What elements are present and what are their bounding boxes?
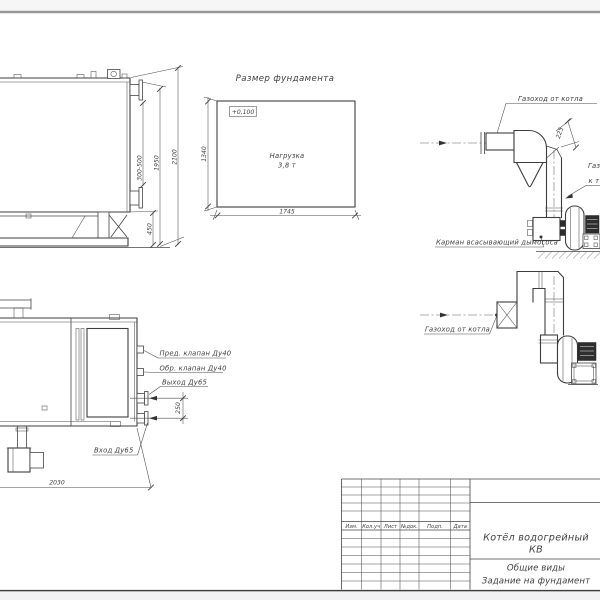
load-value: 3,8 т bbox=[278, 162, 297, 170]
dim-base-height: 450 bbox=[147, 223, 154, 235]
label-to-stack-1: Газ bbox=[588, 162, 600, 170]
svg-text:Карман всасывающий дымососа: Карман всасывающий дымососа bbox=[436, 239, 558, 247]
dim-225: 225 bbox=[555, 118, 579, 150]
smoke-exhauster bbox=[558, 336, 599, 385]
inlet-label: Вход Ду65 bbox=[93, 423, 148, 455]
dim-length-value: 2030 bbox=[49, 480, 65, 487]
label-from-boiler: Газоход от котла bbox=[518, 95, 583, 103]
label-to-stack: Газ к т bbox=[565, 162, 600, 199]
window-bottom-edge bbox=[0, 592, 600, 600]
window-top-edge bbox=[0, 0, 600, 12]
tb-header-izm: Изм. bbox=[345, 524, 357, 530]
burner-assembly bbox=[7, 426, 44, 472]
safety-valve bbox=[137, 346, 144, 353]
downcomer-duct bbox=[545, 150, 563, 218]
dim-nozzle-range: 300-500 bbox=[137, 155, 144, 181]
sheet-name-line2: Задание на фундамент bbox=[482, 577, 591, 587]
tb-header-list: Лист bbox=[383, 524, 398, 530]
dim-offset-value: 225 bbox=[555, 126, 565, 139]
svg-text:Вход Ду65: Вход Ду65 bbox=[94, 447, 134, 455]
boiler-side-view: 2100 1950 300-500 450 bbox=[0, 65, 184, 248]
safety-valve-top bbox=[108, 70, 121, 79]
dim-width: 1745 bbox=[279, 209, 295, 216]
svg-text:Пред. клапан Ду40: Пред. клапан Ду40 bbox=[160, 350, 232, 358]
title-block: Изм. Кол.уч Лист №док. Подп. Дата Котёл … bbox=[342, 479, 600, 590]
tb-header-ndok: №док. bbox=[400, 524, 418, 530]
outlet-nozzle bbox=[130, 80, 143, 100]
product-name-line2: КВ bbox=[529, 545, 543, 556]
inlet-nozzle bbox=[130, 188, 143, 209]
foundation-title: Размер фундамента bbox=[236, 74, 335, 84]
gas-duct-front-view: Газоход от котла bbox=[420, 272, 598, 385]
dim-spacing-value: 250 bbox=[175, 402, 182, 414]
gas-duct-side-view: Газоход от котла 225 Газ к bbox=[420, 95, 600, 259]
load-label: Нагрузка bbox=[270, 152, 305, 160]
dim-total-height: 2100 bbox=[172, 149, 179, 165]
check-valve-label: Обр. клапан Ду40 bbox=[144, 365, 227, 373]
drawing-sheet: 2100 1950 300-500 450 Размер фундамента … bbox=[0, 0, 600, 600]
tb-header-koluch: Кол.уч bbox=[362, 524, 380, 530]
flow-arrow bbox=[439, 141, 447, 146]
svg-text:Газоход от котла: Газоход от котла bbox=[425, 326, 490, 334]
dim-nozzle-spacing: 250 bbox=[175, 392, 186, 424]
tb-header-podp: Подп. bbox=[427, 524, 443, 530]
support-frame bbox=[0, 212, 128, 246]
svg-text:Обр. клапан Ду40: Обр. клапан Ду40 bbox=[160, 365, 227, 373]
flow-arrow bbox=[440, 313, 448, 318]
outlet-label: Выход Ду65 bbox=[149, 379, 208, 395]
pocket-label: Карман всасывающий дымососа bbox=[435, 239, 558, 248]
elevation-value: +0,100 bbox=[232, 109, 255, 116]
top-fitting bbox=[91, 72, 96, 79]
safety-valve-label: Пред. клапан Ду40 bbox=[144, 350, 231, 359]
dim-depth: 1340 bbox=[201, 146, 208, 162]
inlet-transition bbox=[497, 302, 517, 328]
from-boiler-label: Газоход от котла bbox=[424, 317, 497, 335]
product-name-line1: Котёл водогрейный bbox=[483, 533, 589, 544]
suction-pocket bbox=[528, 218, 567, 241]
foundation-plan: Размер фундамента +0,100 Нагрузка 3,8 т … bbox=[201, 74, 361, 220]
top-fitting bbox=[122, 74, 127, 78]
cyclone-inlet bbox=[486, 133, 514, 150]
label-to-stack-2: к т bbox=[589, 177, 600, 185]
cyclone-body bbox=[514, 131, 547, 163]
cyclone-cone bbox=[517, 163, 544, 187]
elbow-duct bbox=[517, 272, 564, 336]
dim-upper: 1950 bbox=[154, 155, 161, 171]
boiler-plan-view: Пред. клапан Ду40 Обр. клапан Ду40 Выход… bbox=[0, 299, 231, 491]
tb-header-data: Дата bbox=[452, 524, 466, 530]
drawing-canvas: 2100 1950 300-500 450 Размер фундамента … bbox=[0, 0, 600, 600]
left-pipe bbox=[0, 299, 31, 319]
outlet-box bbox=[539, 335, 560, 363]
smoke-exhauster bbox=[566, 206, 600, 250]
ground-hatch bbox=[536, 252, 600, 259]
sheet-name-line1: Общие виды bbox=[507, 564, 565, 574]
svg-text:Выход Ду65: Выход Ду65 bbox=[162, 379, 207, 387]
motor bbox=[578, 343, 596, 361]
check-valve bbox=[137, 369, 144, 376]
